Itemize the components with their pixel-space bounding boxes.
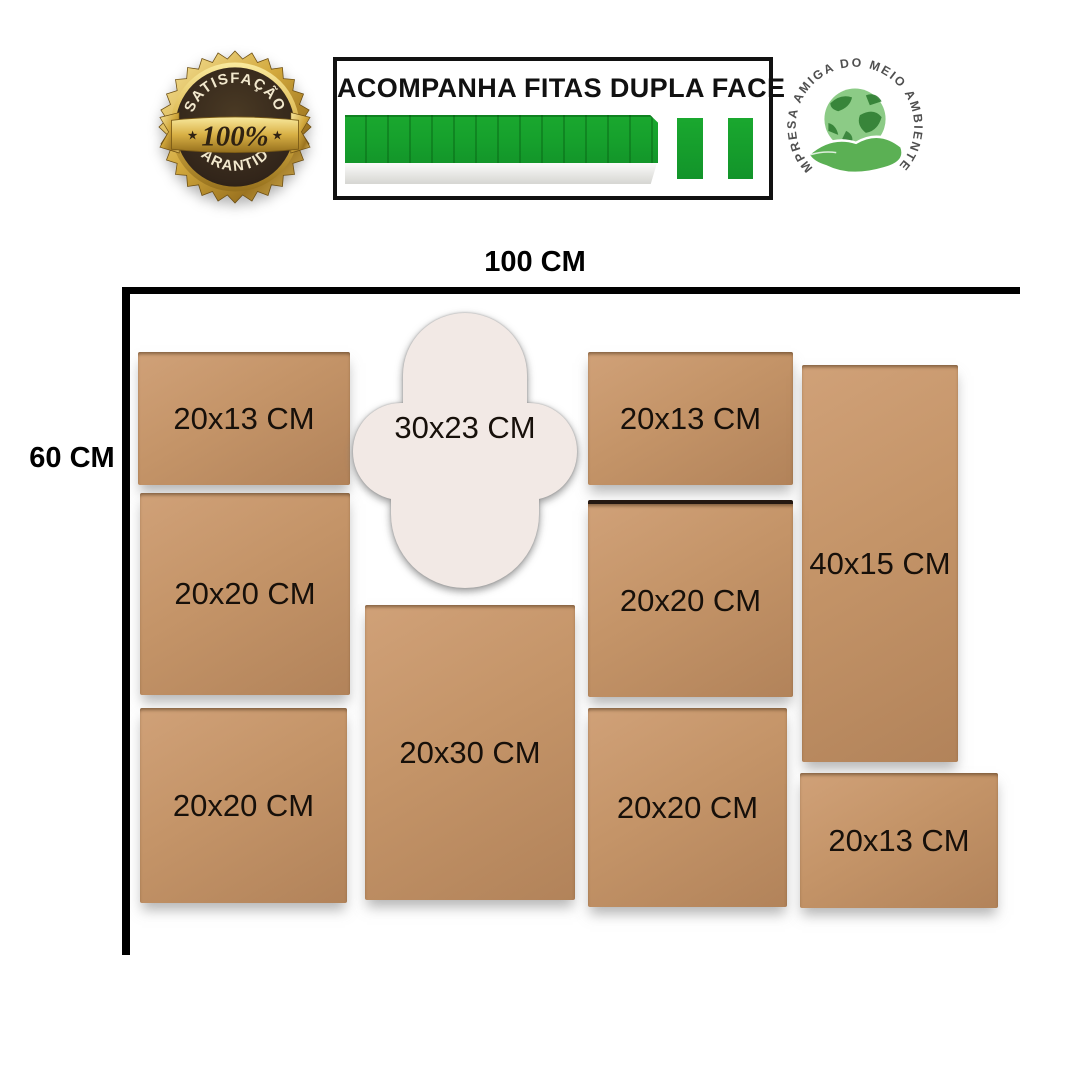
- badge-center-text: 100%: [201, 120, 268, 152]
- tape-callout-box: ACOMPANHA FITAS DUPLA FACE: [333, 57, 773, 200]
- board-label: 40x15 CM: [809, 546, 950, 582]
- board-label: 30x23 CM: [353, 410, 577, 446]
- board-20x13-far-bottom-right: 20x13 CM: [800, 773, 998, 908]
- tape-strip-icon: [345, 115, 658, 163]
- board-30x23-ornate-plaque: 30x23 CM: [353, 307, 577, 590]
- board-label: 20x20 CM: [173, 788, 314, 824]
- board-20x30-center-bottom: 20x30 CM: [365, 605, 575, 900]
- left-axis-line: [122, 287, 130, 955]
- board-40x15-right-column: 40x15 CM: [802, 365, 958, 762]
- eco-stamp: EMPRESA AMIGA DO MEIO AMBIENTE -: [781, 52, 929, 200]
- board-label: 20x13 CM: [620, 401, 761, 437]
- board-label: 20x13 CM: [828, 823, 969, 859]
- tape-backing-icon: [345, 163, 657, 184]
- tape-piece-icon: [677, 118, 703, 179]
- board-label: 20x13 CM: [173, 401, 314, 437]
- height-dimension-label: 60 CM: [22, 442, 122, 475]
- hand-icon: [809, 137, 903, 173]
- satisfaction-badge: SATISFAÇÃO GARANTIDA ★ ★ 100%: [158, 50, 312, 204]
- board-20x13-top-left: 20x13 CM: [138, 352, 350, 485]
- board-label: 20x20 CM: [174, 576, 315, 612]
- board-20x20-bottom-right: 20x20 CM: [588, 708, 787, 907]
- tape-piece-icon: [728, 118, 753, 179]
- board-label: 20x30 CM: [399, 735, 540, 771]
- product-infographic: SATISFAÇÃO GARANTIDA ★ ★ 100% ACOMPANHA …: [0, 0, 1080, 1080]
- board-20x20-middle-left: 20x20 CM: [140, 493, 350, 695]
- board-label: 20x20 CM: [617, 790, 758, 826]
- top-axis-line: [122, 287, 1020, 294]
- plaque-bottom-dome: [391, 455, 539, 588]
- board-20x20-middle-right: 20x20 CM: [588, 500, 793, 697]
- width-dimension-label: 100 CM: [435, 246, 635, 279]
- eco-stamp-icon: EMPRESA AMIGA DO MEIO AMBIENTE -: [781, 52, 929, 200]
- board-label: 20x20 CM: [620, 583, 761, 619]
- badge-star-left: ★: [187, 129, 198, 143]
- satisfaction-badge-icon: SATISFAÇÃO GARANTIDA ★ ★ 100%: [158, 50, 312, 204]
- board-20x20-bottom-left: 20x20 CM: [140, 708, 347, 903]
- tape-box-title: ACOMPANHA FITAS DUPLA FACE: [337, 73, 769, 104]
- board-20x13-top-right: 20x13 CM: [588, 352, 793, 485]
- badge-star-right: ★: [272, 129, 283, 143]
